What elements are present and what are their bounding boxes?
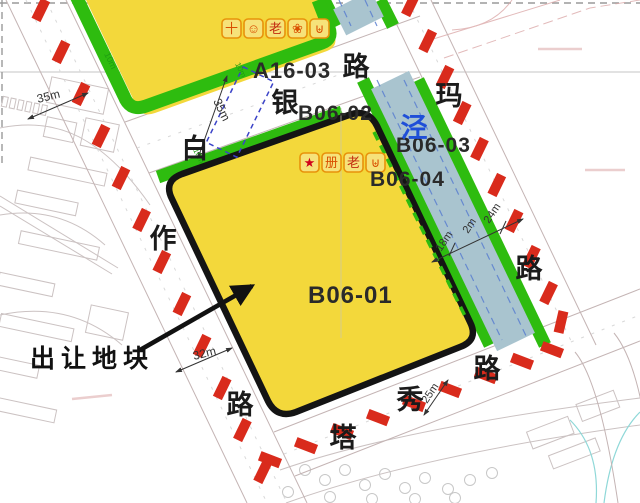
left-building-cluster — [0, 75, 173, 433]
road-char-xiu: 秀 — [396, 385, 424, 415]
dim-35m-left: 35m — [35, 87, 61, 106]
road-char-yin: 银 — [272, 88, 299, 118]
parcel-label-b06-01: B06-01 — [308, 282, 393, 309]
road-char-zuo: 作 — [150, 224, 177, 254]
road-char-ta: 塔 — [330, 423, 358, 453]
topright-faint-roads — [430, 0, 640, 58]
elder-icon: 老 — [269, 21, 282, 36]
river-label-jing: 泾 — [401, 113, 428, 143]
parcel-label-a16-03: A16-03 — [253, 58, 331, 83]
book-icon: 册 — [325, 155, 338, 170]
map-canvas: 35m 10m 35m 10m 10m 32m 18m 2m 24m 25m 十… — [0, 0, 640, 503]
parcel-label-b06-04: B06-04 — [370, 168, 445, 191]
basket-icon: ⊎ — [315, 21, 325, 36]
callout-label: 出让地块 — [30, 345, 154, 373]
road-char-bai: 白 — [182, 133, 209, 164]
road-char-lu-top: 路 — [343, 51, 371, 82]
parcel-label-b06-02: B06-02 — [298, 102, 373, 125]
planning-map: 35m 10m 35m 10m 10m 32m 18m 2m 24m 25m 十… — [0, 0, 640, 503]
smiley-icon: ☺ — [247, 21, 260, 36]
star-icon: ★ — [304, 155, 316, 170]
dim-35m-cross: 35m — [210, 96, 233, 123]
dim-32m: 32m — [191, 344, 217, 363]
road-char-lu-bottom: 路 — [474, 353, 502, 384]
cross-icon: 十 — [225, 21, 238, 36]
road-char-lu-left: 路 — [227, 389, 255, 420]
elder-icon: 老 — [347, 155, 360, 170]
a16-facility-icons: 十 ☺ 老 ❀ ⊎ — [222, 19, 329, 38]
road-char-lu-right: 路 — [516, 253, 544, 284]
road-char-ma: 玛 — [436, 81, 463, 111]
flower-icon: ❀ — [292, 21, 303, 36]
